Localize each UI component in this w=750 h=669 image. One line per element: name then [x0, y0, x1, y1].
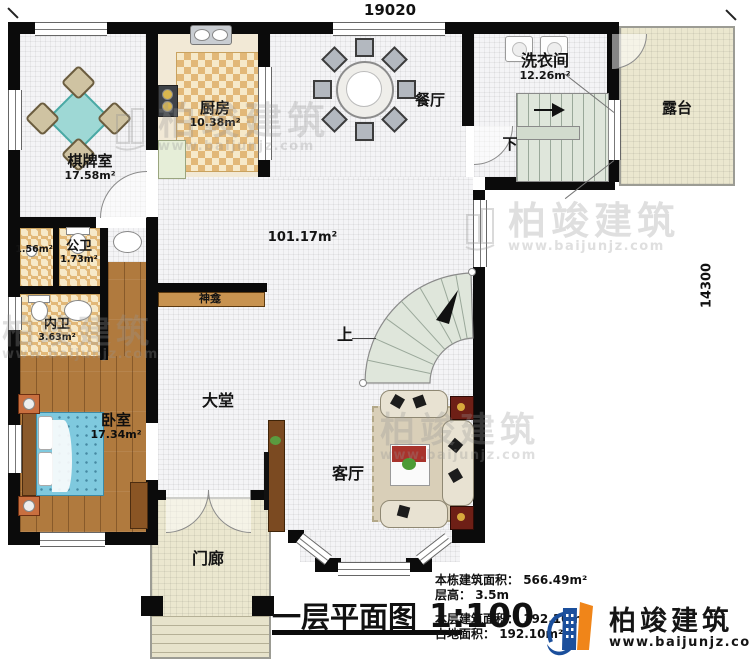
label-shrine: 神龛: [180, 293, 240, 306]
label-shower: 1.56m²: [12, 245, 56, 256]
dimension-tick-left: [7, 7, 18, 18]
bed-sheet-fold: [52, 420, 72, 492]
dimension-right: 14300: [700, 251, 715, 321]
stat-label: 本层建筑面积：: [435, 612, 519, 626]
wall-bath-horizontal: [8, 286, 108, 294]
window-chess-left: [8, 90, 22, 150]
tv-screen: [264, 452, 269, 510]
room-name-porch: 门廊: [178, 550, 238, 568]
room-name-kitchen: 厨房: [160, 100, 270, 117]
room-area-inner-bath: 3.63m²: [32, 333, 82, 344]
kitchen-sink-basin-right: [212, 29, 228, 41]
lamp-bottom: [23, 500, 35, 512]
sofa-right: [442, 420, 474, 506]
stat-value: 3.5m: [475, 588, 509, 602]
room-name-dining: 餐厅: [400, 92, 460, 109]
porch-steps: [150, 616, 271, 659]
dining-table-center: [346, 71, 382, 107]
window-inner-bath: [8, 297, 22, 330]
room-name-lobby: 大堂: [188, 392, 248, 410]
room-area-hall: 101.17m²: [255, 231, 350, 246]
kitchen-counter: [158, 140, 186, 179]
label-laundry: 洗衣间 12.26m²: [495, 52, 595, 83]
room-area-kitchen: 10.38m²: [160, 117, 270, 130]
corner-cabinet-bottom-knob: [457, 513, 465, 521]
label-kitchen: 厨房 10.38m²: [160, 100, 270, 130]
window-dining-top: [333, 22, 445, 36]
wall-lobby-left: [146, 217, 158, 423]
stat-label: 本栋建筑面积：: [435, 573, 519, 587]
staircase-down-arrow: [552, 103, 565, 117]
coffee-table-plant: [402, 458, 416, 470]
stat-label: 占地面积：: [435, 627, 495, 641]
stove-burner-1: [162, 89, 173, 100]
room-name-laundry: 洗衣间: [495, 52, 595, 70]
label-dining: 餐厅: [400, 92, 460, 109]
floor-plan-canvas: 19020 14300: [0, 0, 750, 669]
room-area-public-bath: 1.73m²: [57, 255, 101, 266]
bed-pillow-1: [38, 416, 53, 450]
stat-floor-height: 层高： 3.5m: [435, 586, 509, 603]
room-name-shrine: 神龛: [180, 293, 240, 306]
wall-laundry-left: [462, 34, 474, 126]
label-stair-down: 下: [495, 136, 525, 153]
label-public-bath: 公卫 1.73m²: [57, 240, 101, 266]
label-bedroom: 卧室 17.34m²: [80, 412, 152, 442]
dining-chair-w: [313, 80, 332, 99]
label-terrace: 露台: [645, 100, 709, 117]
sofa-bottom: [380, 500, 448, 528]
dimension-tick-right: [725, 9, 736, 20]
wall-bay-right-corner: [452, 530, 485, 543]
label-lobby: 大堂: [188, 392, 248, 410]
porch-column-left: [141, 596, 163, 616]
floor-shower: [20, 228, 55, 287]
wall-bath-right: [100, 228, 108, 360]
staircase-up: [300, 268, 480, 388]
stat-value: 566.49m²: [523, 573, 587, 587]
watermark: 柏竣建筑 www.baijunjz.com: [462, 202, 680, 253]
stat-label: 层高：: [435, 588, 471, 602]
staircase-down-arrow-tail: [534, 109, 552, 111]
lamp-top: [23, 398, 35, 410]
door-leaf-bedroom: [130, 482, 148, 529]
brand-name: 柏竣建筑: [609, 608, 750, 636]
label-stair-up: 上: [330, 326, 360, 344]
window-bedroom-bottom: [40, 532, 105, 547]
room-area-bedroom: 17.34m²: [80, 429, 152, 442]
window-bay-bottom: [338, 562, 410, 576]
room-name-inner-bath: 内卫: [32, 318, 82, 333]
stair-down-text: 下: [495, 136, 525, 153]
window-hall-right: [473, 200, 487, 267]
wall-kitchen-right-lower: [258, 160, 270, 177]
room-name-public-bath: 公卫: [57, 240, 101, 255]
room-name-chess: 棋牌室: [30, 153, 150, 170]
porch-column-right: [252, 596, 274, 616]
room-name-terrace: 露台: [645, 100, 709, 117]
wall-kitchen-right-upper: [258, 34, 270, 67]
title-underline: [272, 630, 462, 635]
room-area-chess: 17.58m²: [30, 170, 150, 183]
room-name-bedroom: 卧室: [80, 412, 152, 429]
label-hall-area: 101.17m²: [255, 231, 350, 246]
label-porch: 门廊: [178, 550, 238, 568]
wall-chess-kitchen: [146, 34, 158, 150]
label-chess-room: 棋牌室 17.58m²: [30, 153, 150, 183]
room-name-living: 客厅: [318, 465, 378, 483]
window-bedroom-left: [8, 425, 22, 473]
corner-cabinet-top-knob: [457, 403, 465, 411]
dimension-top: 19020: [330, 1, 450, 19]
watermark-name: 柏竣建筑: [508, 202, 680, 240]
plant-on-cabinet: [270, 436, 281, 445]
window-chess-top: [35, 22, 107, 36]
wall-shrine-top: [146, 283, 267, 292]
brand-logo-block: 柏竣建筑 www.baijunjz.com: [543, 598, 750, 660]
dining-chair-n: [355, 38, 374, 57]
brand-logo-icon: [543, 598, 601, 660]
bed-pillow-2: [38, 452, 53, 486]
nook-sink: [113, 231, 142, 253]
brand-site: www.baijunjz.com: [609, 636, 750, 650]
room-area-laundry: 12.26m²: [495, 70, 595, 83]
room-area-shower: 1.56m²: [12, 245, 56, 256]
kitchen-sink-basin-left: [194, 29, 210, 41]
floor-corridor: [108, 262, 146, 360]
label-inner-bath: 内卫 3.63m²: [32, 318, 82, 344]
dining-chair-s: [355, 122, 374, 141]
wall-entry-left: [148, 490, 166, 500]
staircase-landing: [516, 126, 580, 140]
watermark-site: www.baijunjz.com: [508, 240, 680, 253]
stair-up-text: 上: [330, 326, 360, 344]
label-living: 客厅: [318, 465, 378, 483]
